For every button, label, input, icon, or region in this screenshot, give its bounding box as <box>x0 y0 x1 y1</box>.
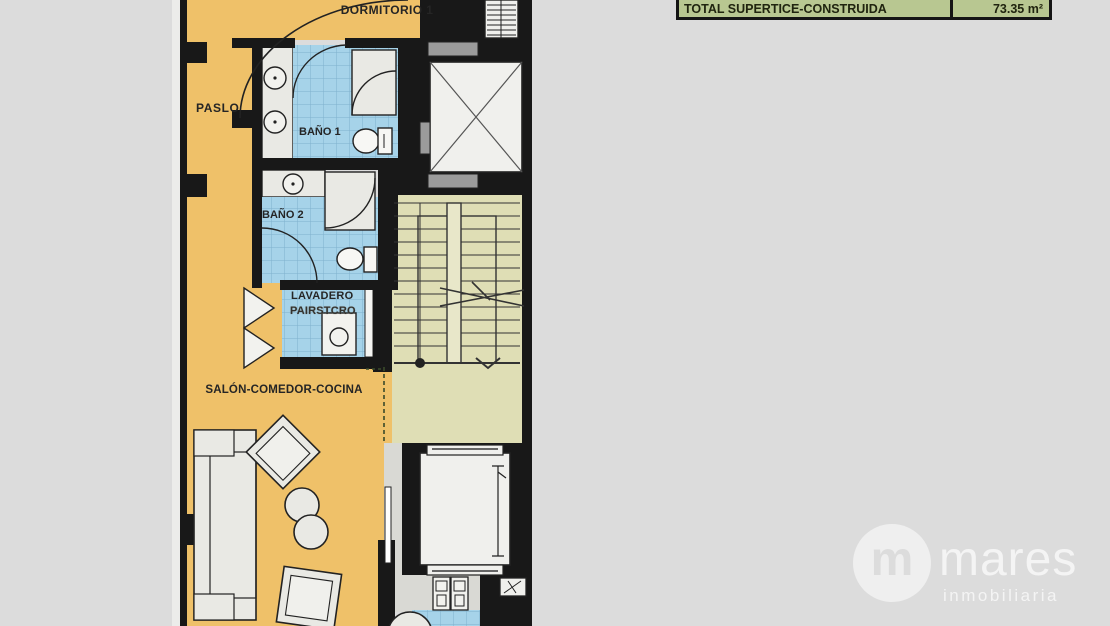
surface-summary-value: 73.35 m² <box>950 0 1049 17</box>
surface-summary-label: TOTAL SUPERTICE-CONSTRUIDA <box>679 0 950 17</box>
shower-icon <box>352 50 396 115</box>
washer-icon <box>322 313 356 355</box>
surface-summary-table: TOTAL SUPERTICE-CONSTRUIDA 73.35 m² <box>676 0 1052 20</box>
toilet-icon <box>353 129 379 153</box>
room-label-salon: SALÓN-COMEDOR-COCINA <box>198 384 370 396</box>
floorplan-page: DORMITORIO 1 PASLO BAÑO 1 BAÑO 2 LAVADER… <box>0 0 1110 626</box>
agency-tagline: inmobiliaria <box>943 586 1059 606</box>
agency-watermark: m mares inmobiliaria <box>843 518 1083 622</box>
armchair-icon <box>276 566 341 626</box>
floorplan-svg <box>180 0 532 626</box>
agency-logo-icon: m <box>853 524 931 602</box>
plan-left-edge <box>172 0 180 626</box>
room-label-bano2: BAÑO 2 <box>262 209 304 221</box>
bath1-counter <box>262 45 293 160</box>
radiator-icon <box>385 487 391 563</box>
room-label-bano1: BAÑO 1 <box>299 126 341 138</box>
room-label-dormitorio1: DORMITORIO 1 <box>332 3 442 17</box>
toilet-icon <box>337 248 363 270</box>
round-table-icon <box>294 515 328 549</box>
agency-logo-letter: m <box>871 536 914 584</box>
elevator-icon <box>420 445 510 575</box>
lightwell <box>420 42 522 188</box>
ladder-icon <box>485 0 518 38</box>
agency-brand-name: mares <box>939 532 1077 587</box>
room-label-lavadero-sub: PAIRSTCRO <box>290 305 356 317</box>
room-label-lavadero: LAVADERO <box>291 290 354 302</box>
room-label-pasillo: PASLO <box>196 101 239 115</box>
sofa-icon <box>194 430 256 620</box>
floorplan-image <box>180 0 532 626</box>
